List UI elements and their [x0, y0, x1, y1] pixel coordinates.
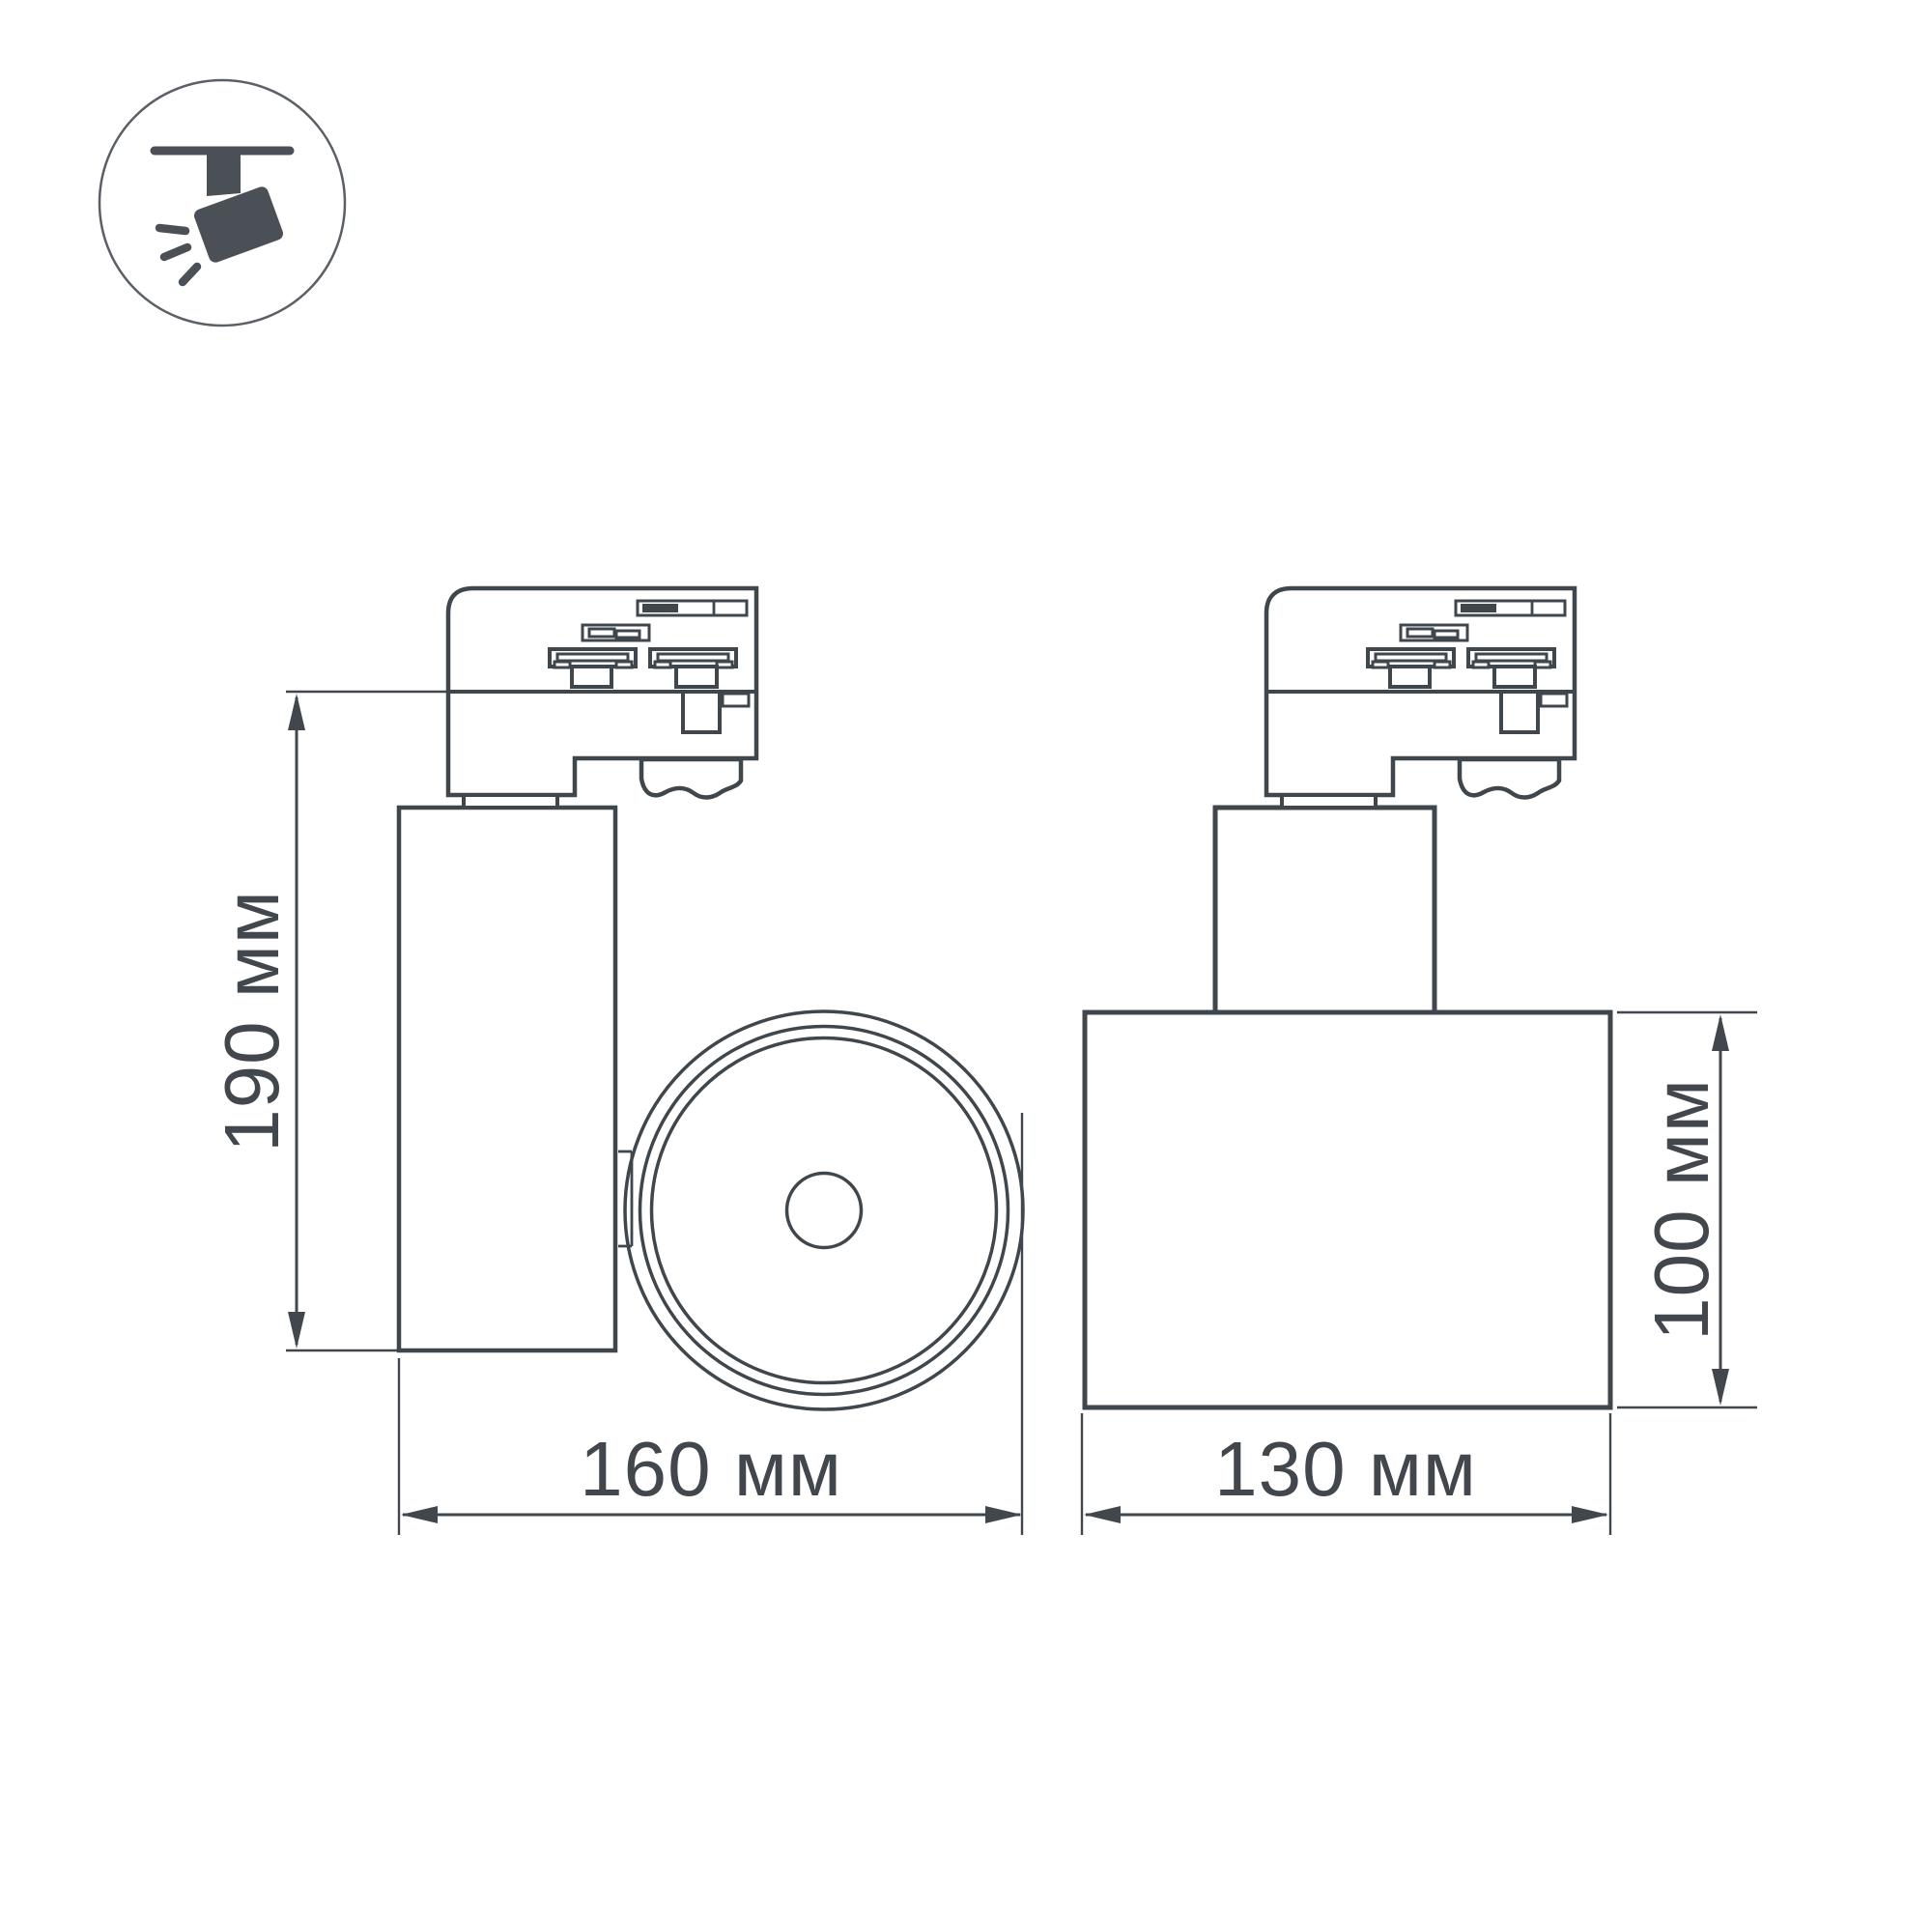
luminaire-dimension-drawing: 190 мм 160 мм 130 мм 100 мм [0, 0, 1932, 1932]
lamp-body-side [399, 808, 615, 1350]
depth-dimension-label: 130 мм [1214, 1426, 1477, 1512]
technical-drawing-page: 190 мм 160 мм 130 мм 100 мм [0, 0, 1932, 1932]
width-dimension-label: 160 мм [580, 1426, 842, 1512]
arrowhead-right [985, 1506, 1022, 1523]
arrowhead-left [401, 1506, 438, 1523]
arrowhead-down [1712, 1369, 1729, 1406]
height-dimension-label: 190 мм [209, 890, 295, 1152]
lamp-body-rear [1085, 1012, 1610, 1407]
right-view [1085, 588, 1610, 1407]
arrowhead-right [1572, 1506, 1608, 1523]
led-center [787, 1174, 862, 1248]
track-adapter [448, 588, 756, 808]
left-view [399, 588, 1023, 1409]
arrowhead-up [1712, 1014, 1729, 1051]
icon-stem [207, 151, 241, 196]
track-spotlight-icon [99, 80, 345, 326]
arrowhead-left [1084, 1506, 1121, 1523]
arrowhead-up [288, 694, 305, 730]
lamp-neck [1215, 808, 1435, 1012]
track-adapter [1266, 588, 1575, 808]
light-ray-icon [159, 228, 185, 231]
arrowhead-down [288, 1312, 305, 1349]
body-height-dimension-label: 100 мм [1638, 1078, 1724, 1341]
